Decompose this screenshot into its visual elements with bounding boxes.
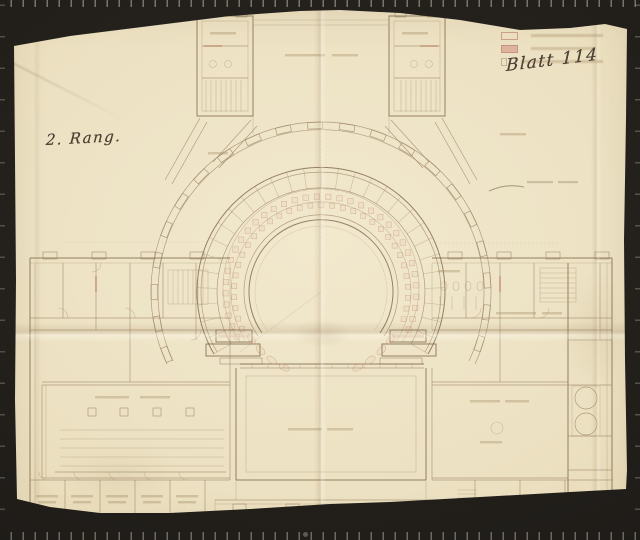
scale-ruler-left (0, 0, 5, 540)
photo-background: 2. Rang. Blatt 114 (0, 0, 640, 540)
scale-ruler-right (635, 0, 640, 540)
paper-vignette (0, 0, 640, 540)
scale-ruler-bottom (0, 532, 640, 540)
mount-dot (303, 532, 308, 537)
scale-ruler-top (0, 0, 640, 7)
paper-sheet: 2. Rang. Blatt 114 (0, 0, 640, 540)
